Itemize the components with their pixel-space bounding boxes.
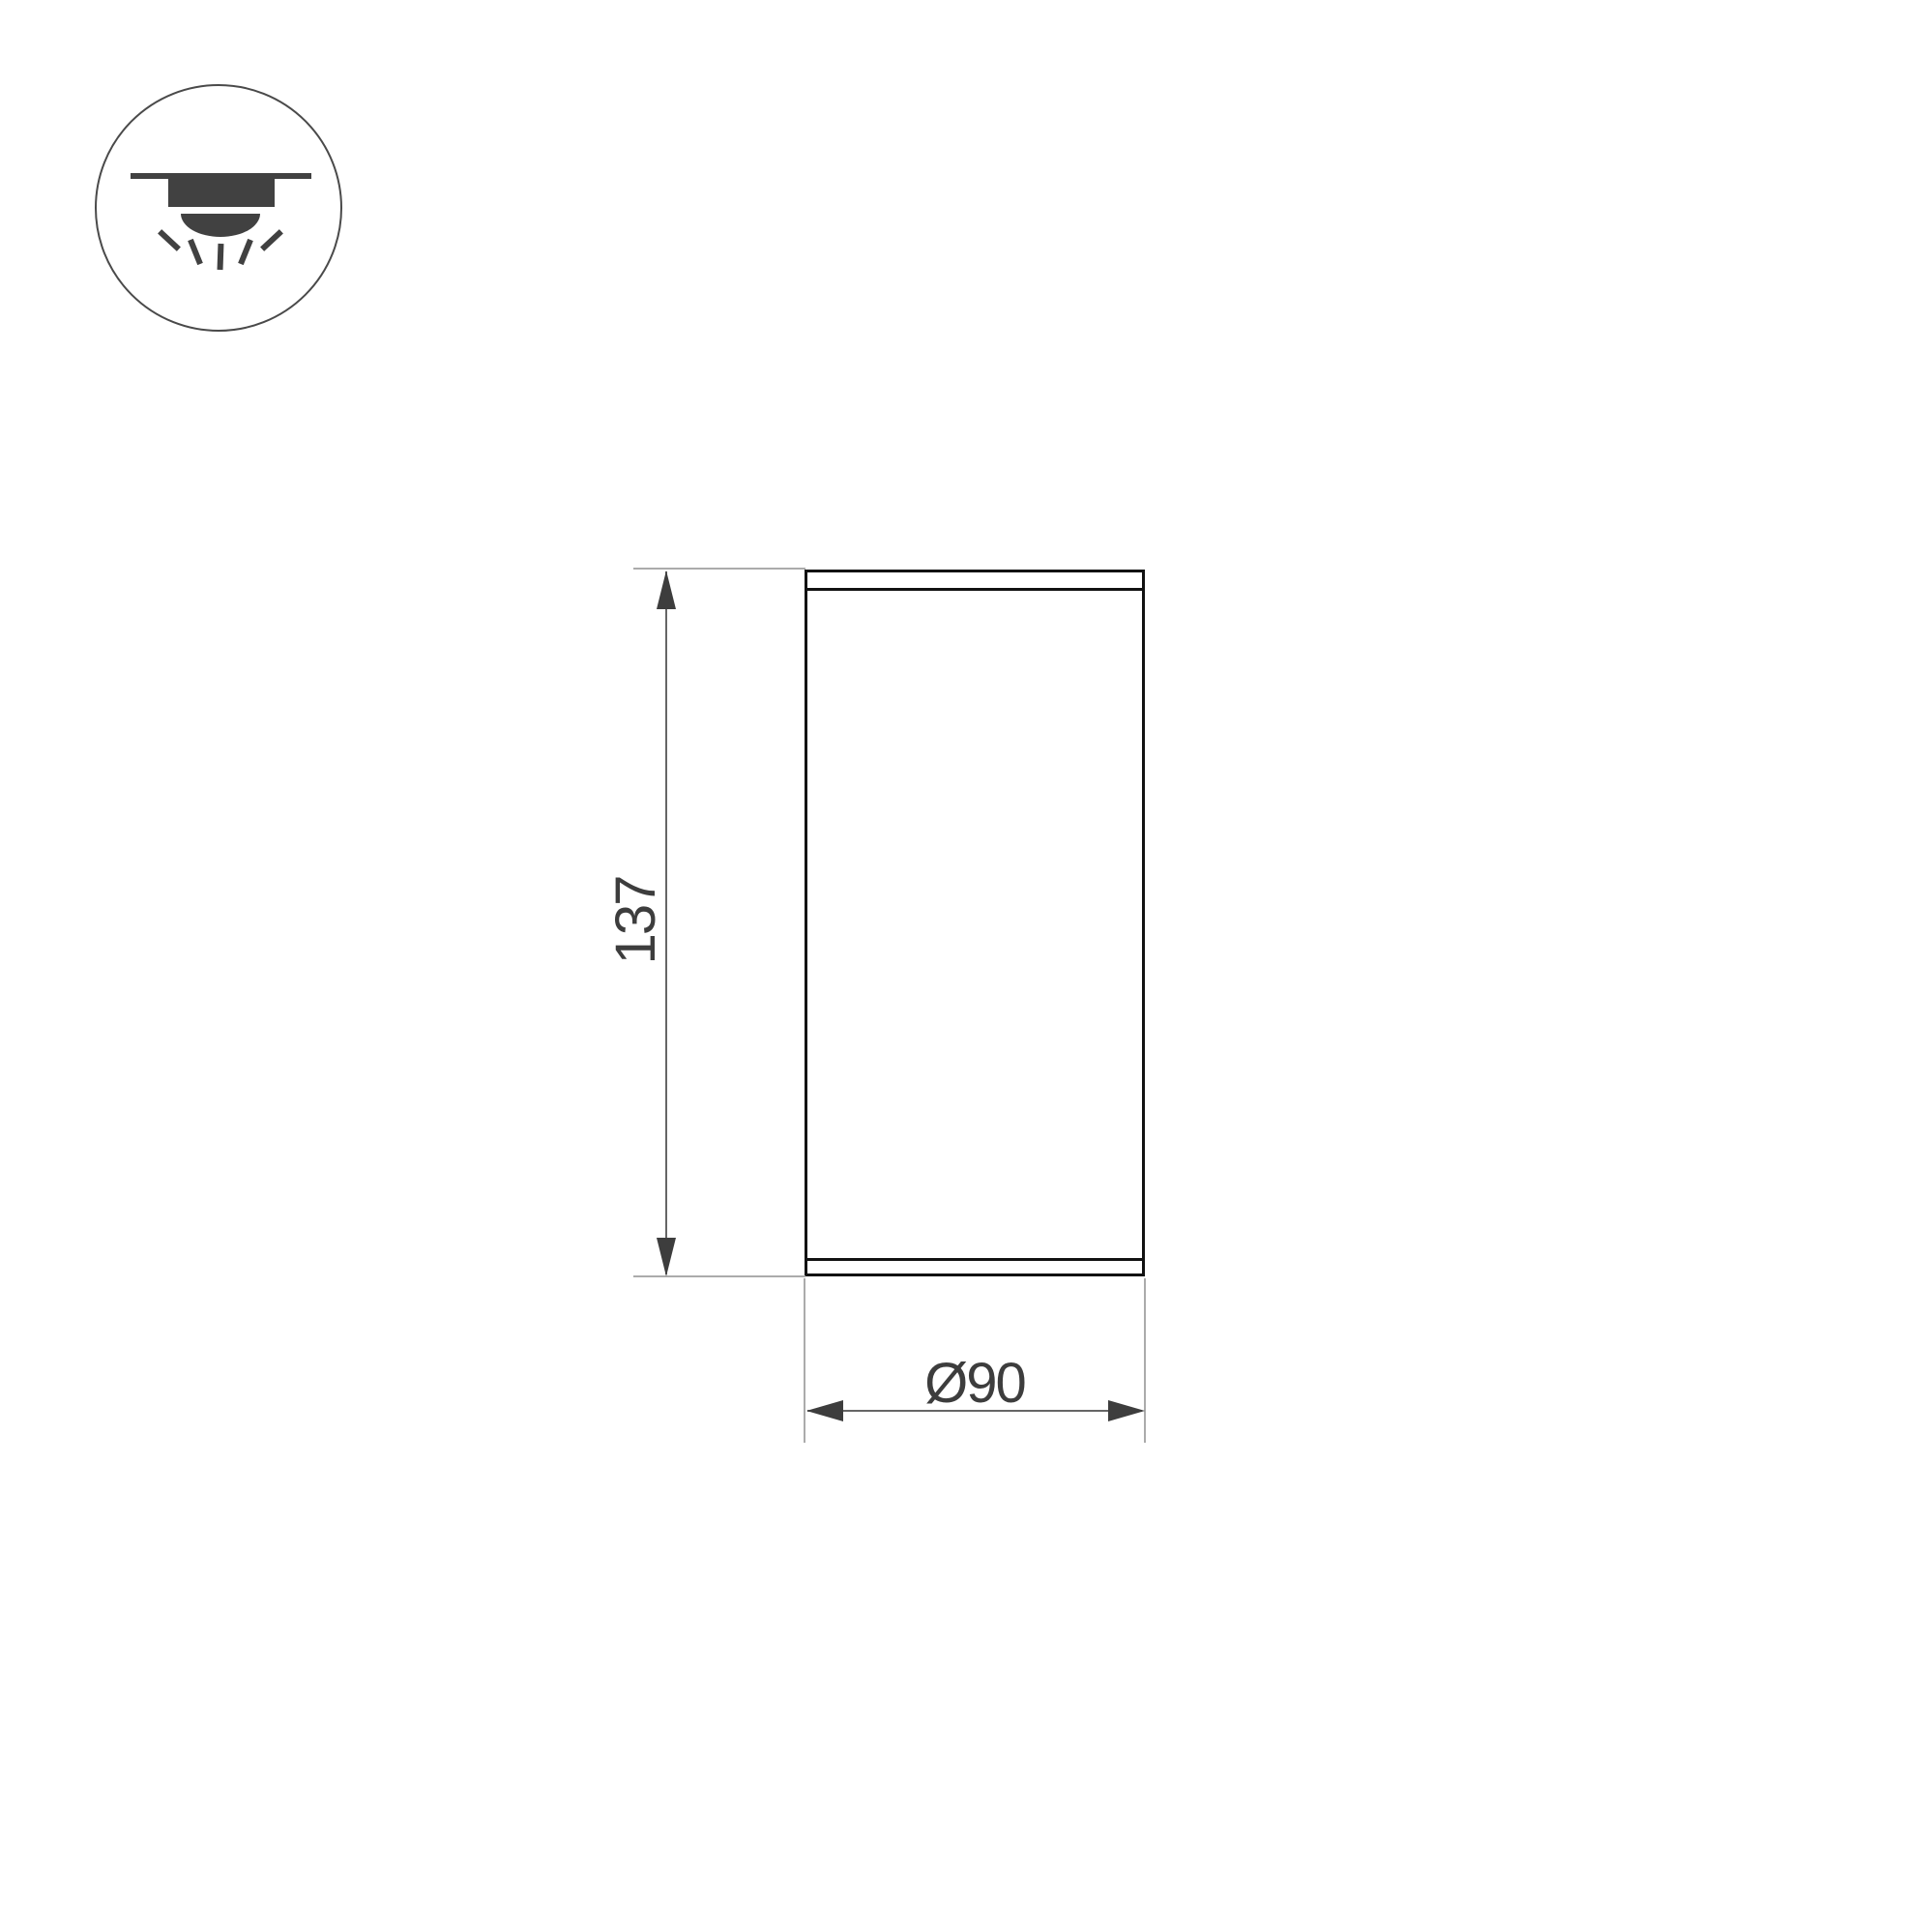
light-ray-icon <box>238 239 253 265</box>
fixture-body-glyph <box>168 179 275 207</box>
luminaire-body-outline <box>805 570 1145 1276</box>
surface-mounted-ceiling-light-icon <box>95 84 342 332</box>
extension-line-diameter-left <box>804 1278 805 1443</box>
arrowhead-down-icon <box>657 1238 676 1276</box>
arrowhead-up-icon <box>657 571 676 609</box>
light-ray-icon <box>188 239 203 265</box>
light-ray-icon <box>218 244 224 270</box>
arrowhead-right-icon <box>1108 1400 1145 1421</box>
lens-dome-glyph <box>181 214 260 237</box>
technical-drawing-canvas: 137 Ø90 <box>0 0 1932 1932</box>
diameter-dimension-label: Ø90 <box>888 1356 1062 1412</box>
light-ray-icon <box>260 229 283 251</box>
light-ray-icon <box>158 229 181 251</box>
arrowhead-left-icon <box>806 1400 843 1421</box>
bottom-cap-line <box>807 1258 1142 1261</box>
height-dimension-label: 137 <box>607 843 665 998</box>
extension-line-top <box>633 568 805 570</box>
top-cap-line <box>807 588 1142 591</box>
